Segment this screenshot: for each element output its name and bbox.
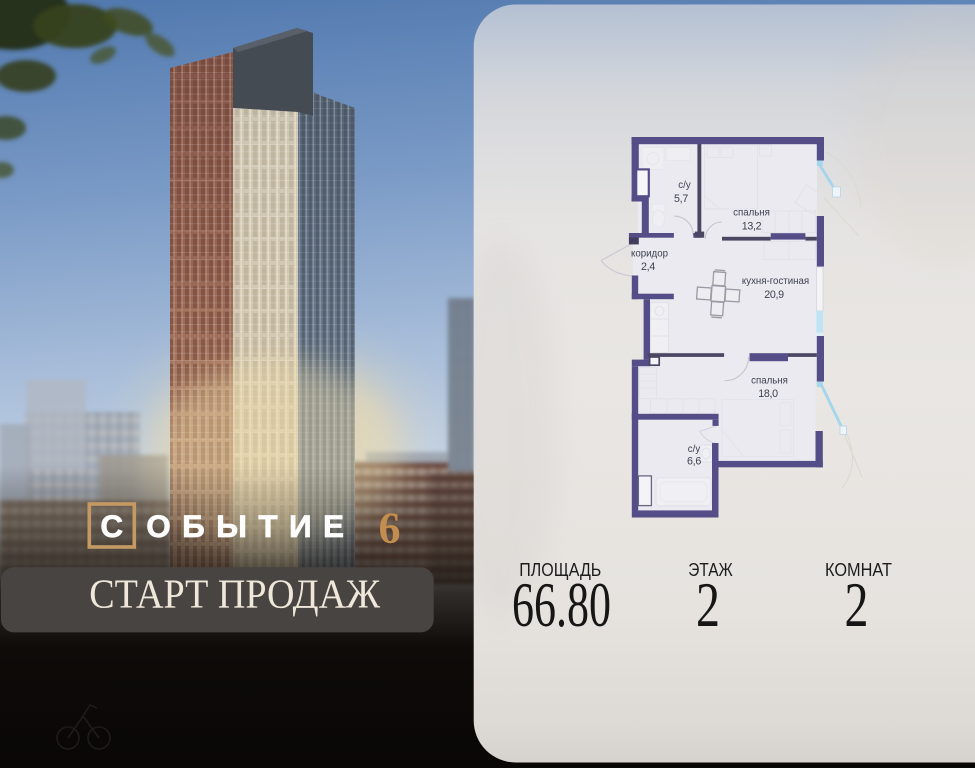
- svg-text:коридор: коридор: [631, 248, 668, 259]
- svg-text:2: 2: [845, 570, 869, 640]
- svg-text:с/у: с/у: [678, 180, 691, 191]
- svg-text:ОБЫТИЕ: ОБЫТИЕ: [146, 508, 355, 544]
- svg-text:2,4: 2,4: [641, 261, 655, 273]
- svg-text:спальня: спальня: [733, 208, 770, 219]
- svg-text:СТАРТ ПРОДАЖ: СТАРТ ПРОДАЖ: [89, 571, 380, 617]
- svg-text:5,7: 5,7: [674, 193, 688, 205]
- svg-text:спальня: спальня: [751, 376, 788, 387]
- svg-text:13,2: 13,2: [742, 221, 762, 233]
- svg-text:6,6: 6,6: [687, 455, 701, 467]
- svg-text:кухня-гостиная: кухня-гостиная: [742, 276, 809, 287]
- svg-text:18,0: 18,0: [758, 388, 778, 400]
- svg-text:С: С: [100, 508, 123, 544]
- svg-text:66.80: 66.80: [512, 570, 611, 640]
- svg-text:2: 2: [696, 570, 720, 640]
- svg-text:20,9: 20,9: [764, 289, 784, 301]
- svg-text:с/у: с/у: [688, 444, 701, 455]
- svg-text:6: 6: [379, 504, 401, 553]
